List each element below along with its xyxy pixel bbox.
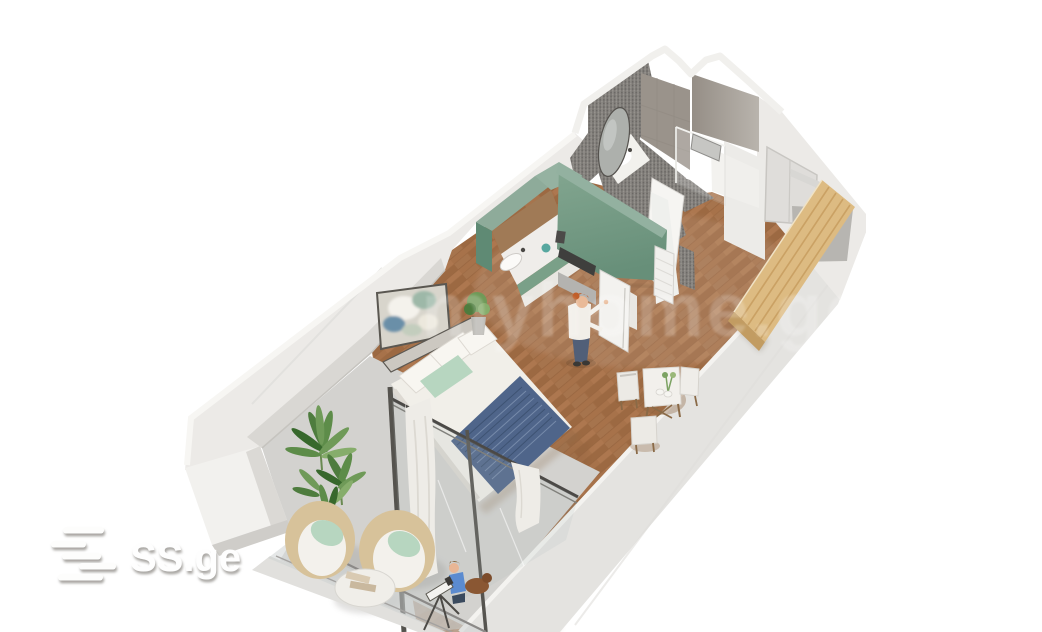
svg-text:myhome.ge: myhome.ge xyxy=(421,268,870,353)
svg-text:SS.ge: SS.ge xyxy=(130,536,241,580)
